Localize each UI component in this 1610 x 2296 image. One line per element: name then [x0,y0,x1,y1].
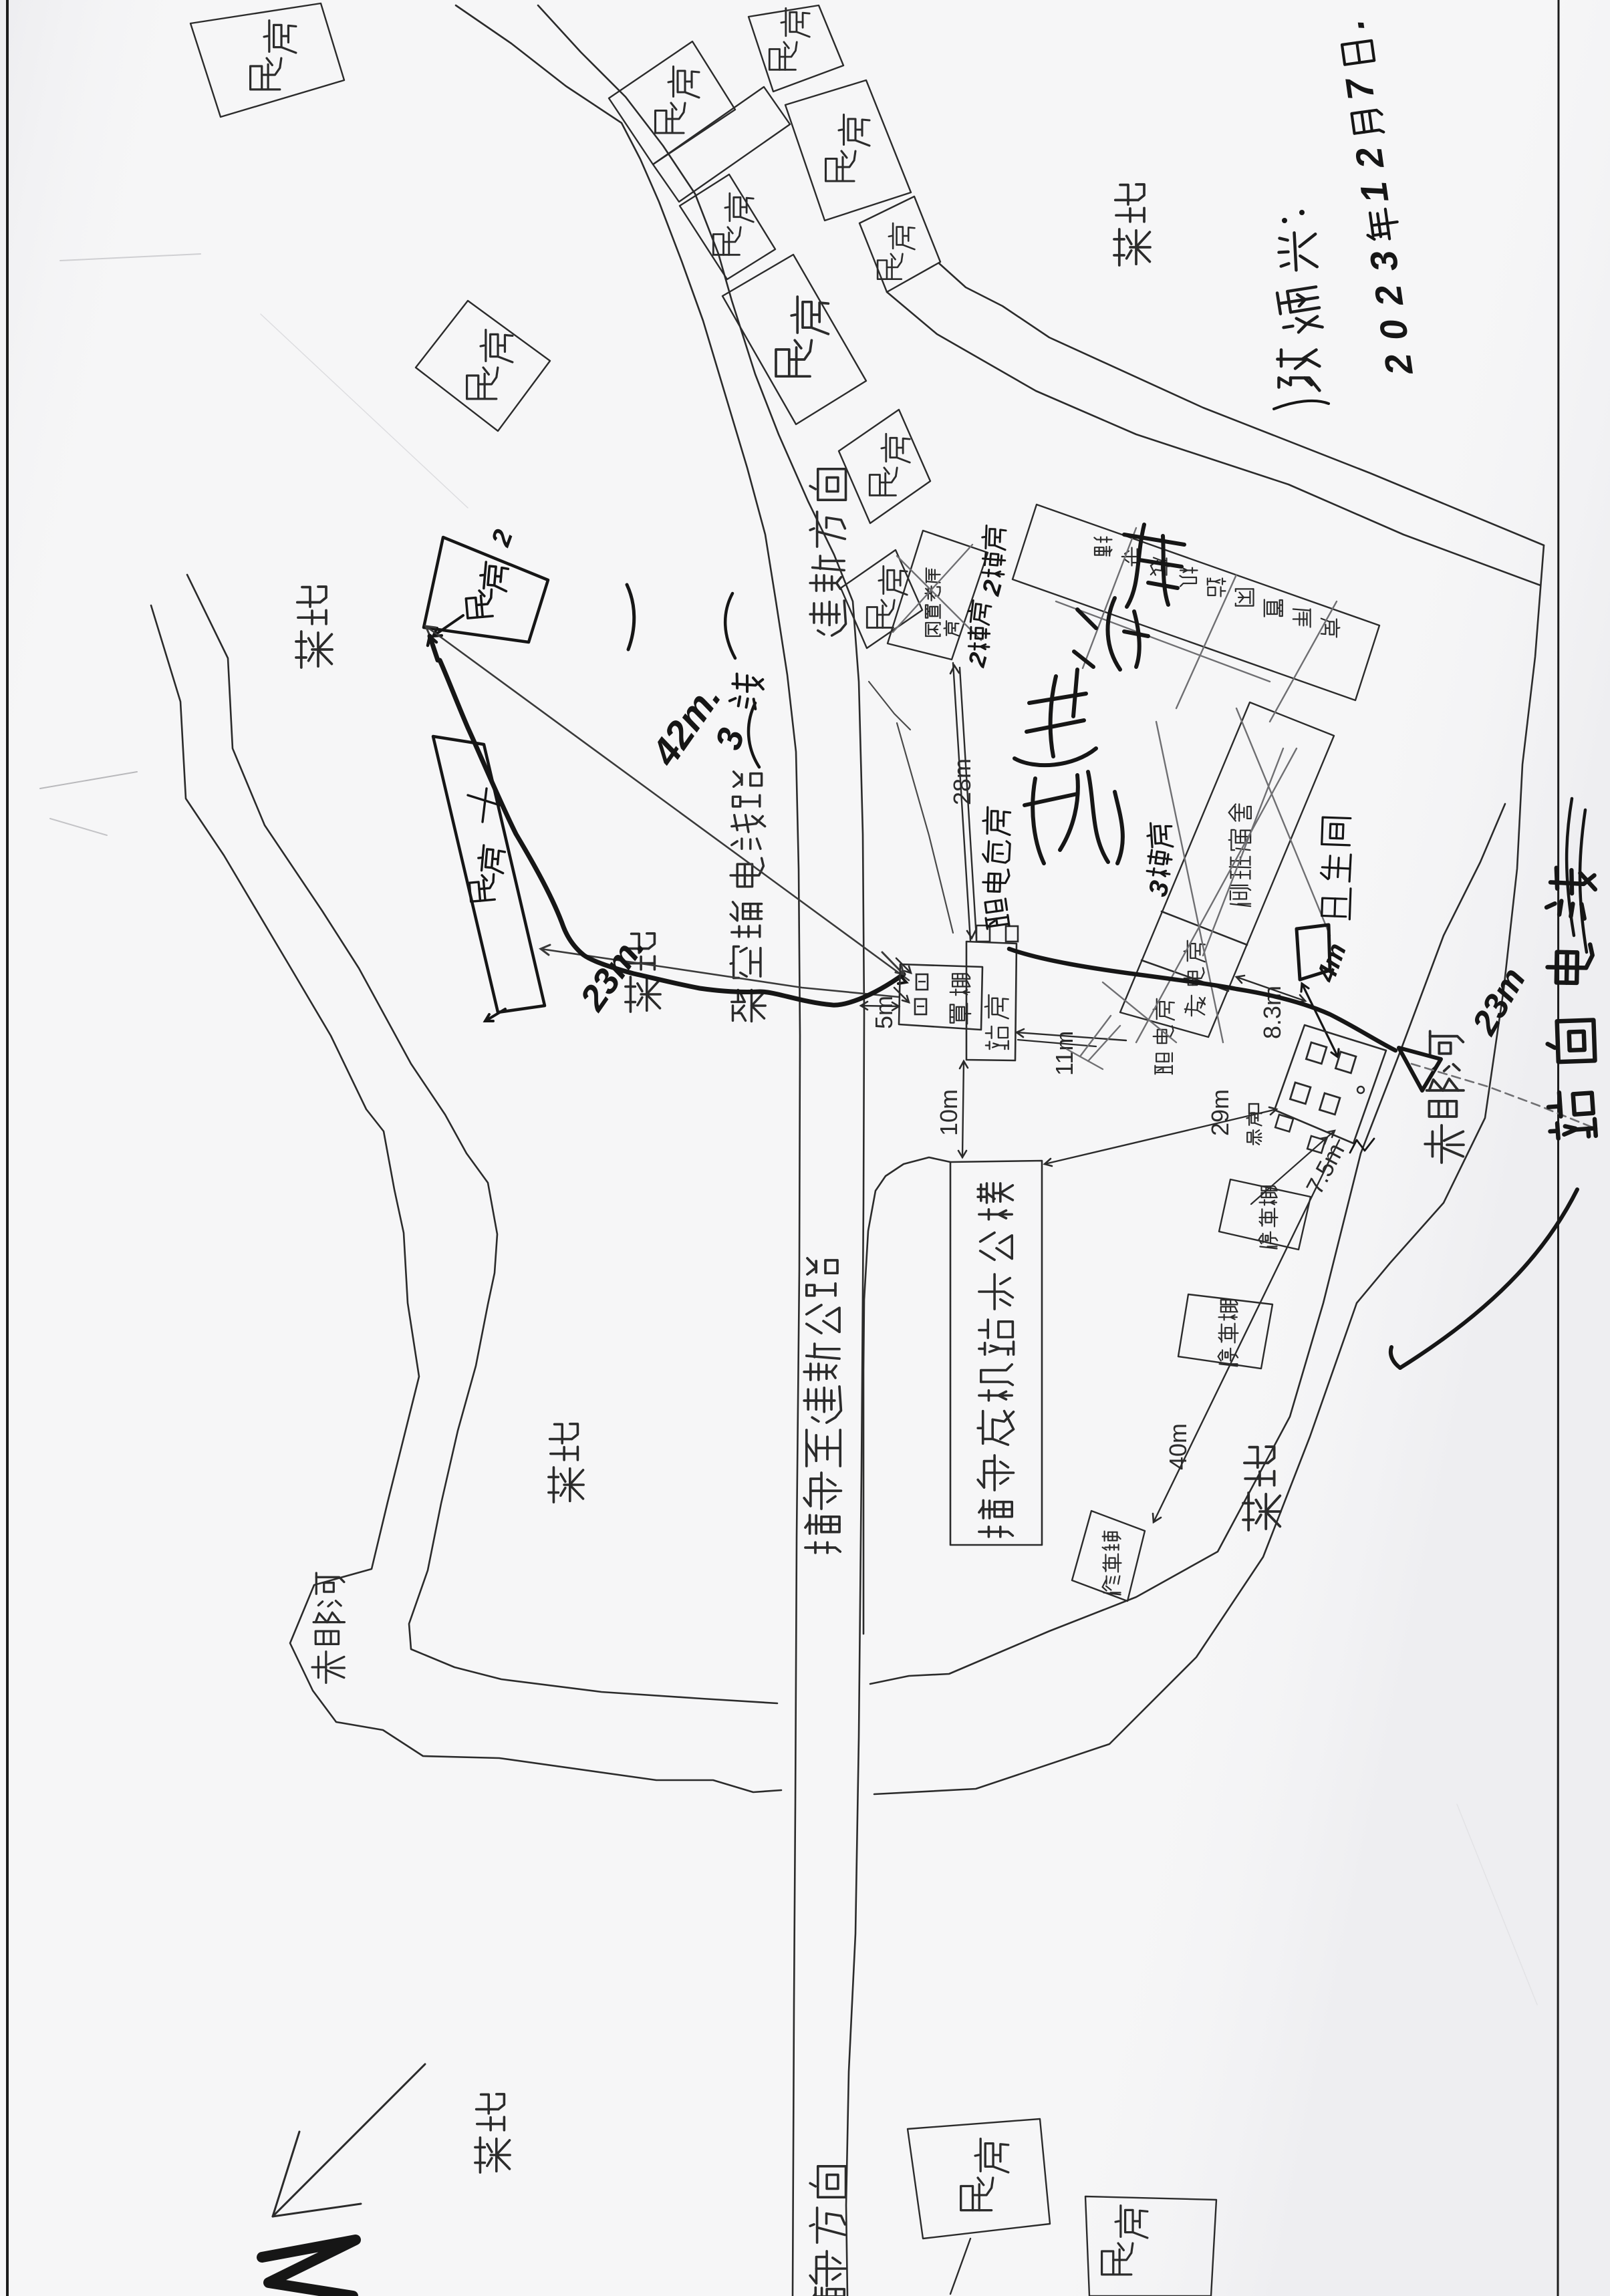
svg-text:28m: 28m [948,758,976,805]
svg-text:40m: 40m [1164,1423,1192,1470]
svg-text:29m: 29m [1206,1089,1234,1136]
svg-text:5m: 5m [870,996,898,1029]
svg-text:10m: 10m [935,1089,962,1136]
